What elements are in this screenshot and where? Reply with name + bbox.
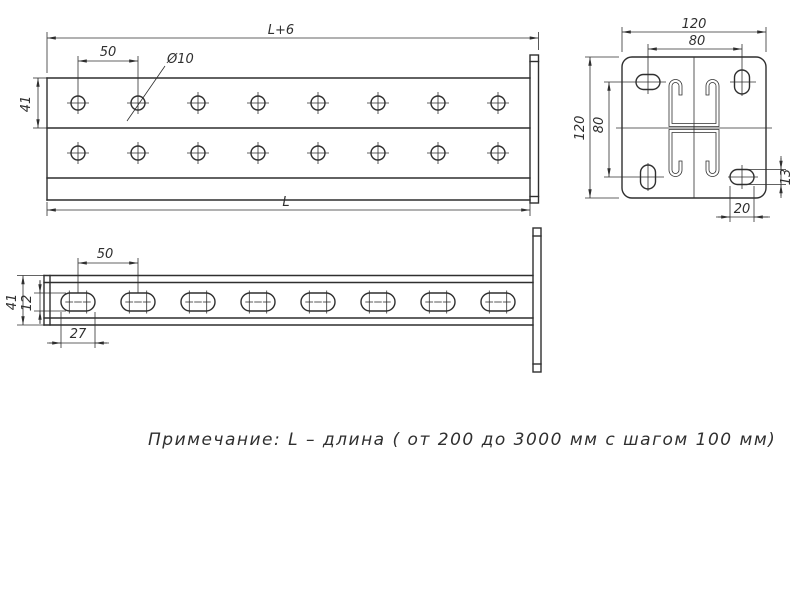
dim-label-41: 41 [19, 96, 34, 113]
front-dim-overall-bottom: L [47, 195, 530, 216]
dim-label-120: 120 [573, 116, 588, 141]
side-view-body [44, 228, 541, 372]
end-plate-edge [533, 228, 541, 372]
dim-label-13: 13 [779, 169, 794, 186]
front-dim-hole-pitch: 50 [78, 45, 138, 92]
side-dim-slot-pitch: 50 [78, 247, 138, 293]
dim-label-80: 80 [592, 117, 607, 134]
front-dim-height: 41 [19, 78, 47, 128]
front-view: L+6 50 Ø10 41 L [19, 23, 539, 216]
end-dim-hole-span-v: 80 [592, 82, 609, 177]
dim-label-120: 120 [682, 17, 707, 32]
dim-label-12: 12 [20, 295, 35, 312]
dim-label-27: 27 [70, 327, 87, 342]
dim-label-l: L [282, 195, 289, 210]
front-view-body [47, 55, 539, 203]
dim-label-41: 41 [5, 294, 20, 311]
drawing-sheet: L+6 50 Ø10 41 L [0, 0, 800, 600]
end-view: 120 80 120 80 13 [573, 17, 794, 222]
front-dim-hole-diameter: Ø10 [127, 52, 194, 121]
end-dim-slot-major: 20 [716, 186, 770, 222]
end-plate-edge [530, 55, 539, 203]
plate-holes [604, 44, 758, 191]
dim-label-20: 20 [734, 202, 751, 217]
side-view: 50 41 12 27 [5, 228, 541, 372]
side-slots [61, 291, 515, 314]
dim-label-50: 50 [100, 45, 117, 60]
dim-label-80: 80 [689, 34, 706, 49]
dim-label-50: 50 [97, 247, 114, 262]
front-holes-row-2 [67, 142, 509, 164]
technical-drawing: L+6 50 Ø10 41 L [0, 0, 800, 600]
dim-label-d10: Ø10 [166, 52, 194, 67]
front-holes-row-1 [67, 92, 509, 114]
drawing-note: Примечание: L – длина ( от 200 до 3000 м… [148, 430, 776, 450]
front-dim-overall-top: L+6 [47, 23, 539, 73]
end-dim-hole-span-h: 80 [648, 34, 742, 49]
dim-label-l6: L+6 [268, 23, 294, 38]
